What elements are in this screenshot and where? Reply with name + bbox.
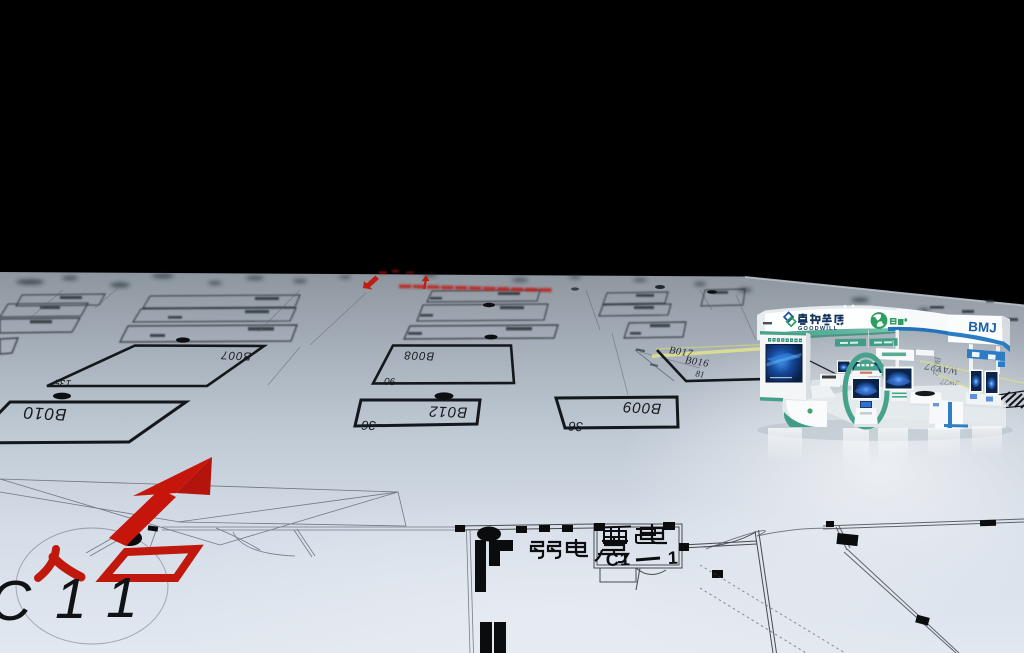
svg-text:1: 1 <box>55 567 87 631</box>
svg-text:BMJ: BMJ <box>968 319 997 335</box>
svg-text:C: C <box>0 569 32 633</box>
svg-text:B007: B007 <box>220 348 251 362</box>
svg-text:36: 36 <box>567 419 583 435</box>
svg-text:B009: B009 <box>622 398 662 417</box>
svg-text:B012: B012 <box>428 402 468 420</box>
svg-text:135: 135 <box>54 377 72 389</box>
svg-text:B010: B010 <box>22 403 67 424</box>
svg-text:90: 90 <box>384 375 396 386</box>
svg-text:GOODWILL: GOODWILL <box>798 326 838 332</box>
svg-text:B022: B022 <box>931 356 943 376</box>
svg-text:1: 1 <box>106 566 138 630</box>
svg-text:B008: B008 <box>403 349 434 362</box>
svg-text:C1: C1 <box>605 549 631 570</box>
svg-text:36: 36 <box>361 418 377 434</box>
svg-text:81: 81 <box>695 368 705 379</box>
svg-text:1: 1 <box>667 548 678 568</box>
